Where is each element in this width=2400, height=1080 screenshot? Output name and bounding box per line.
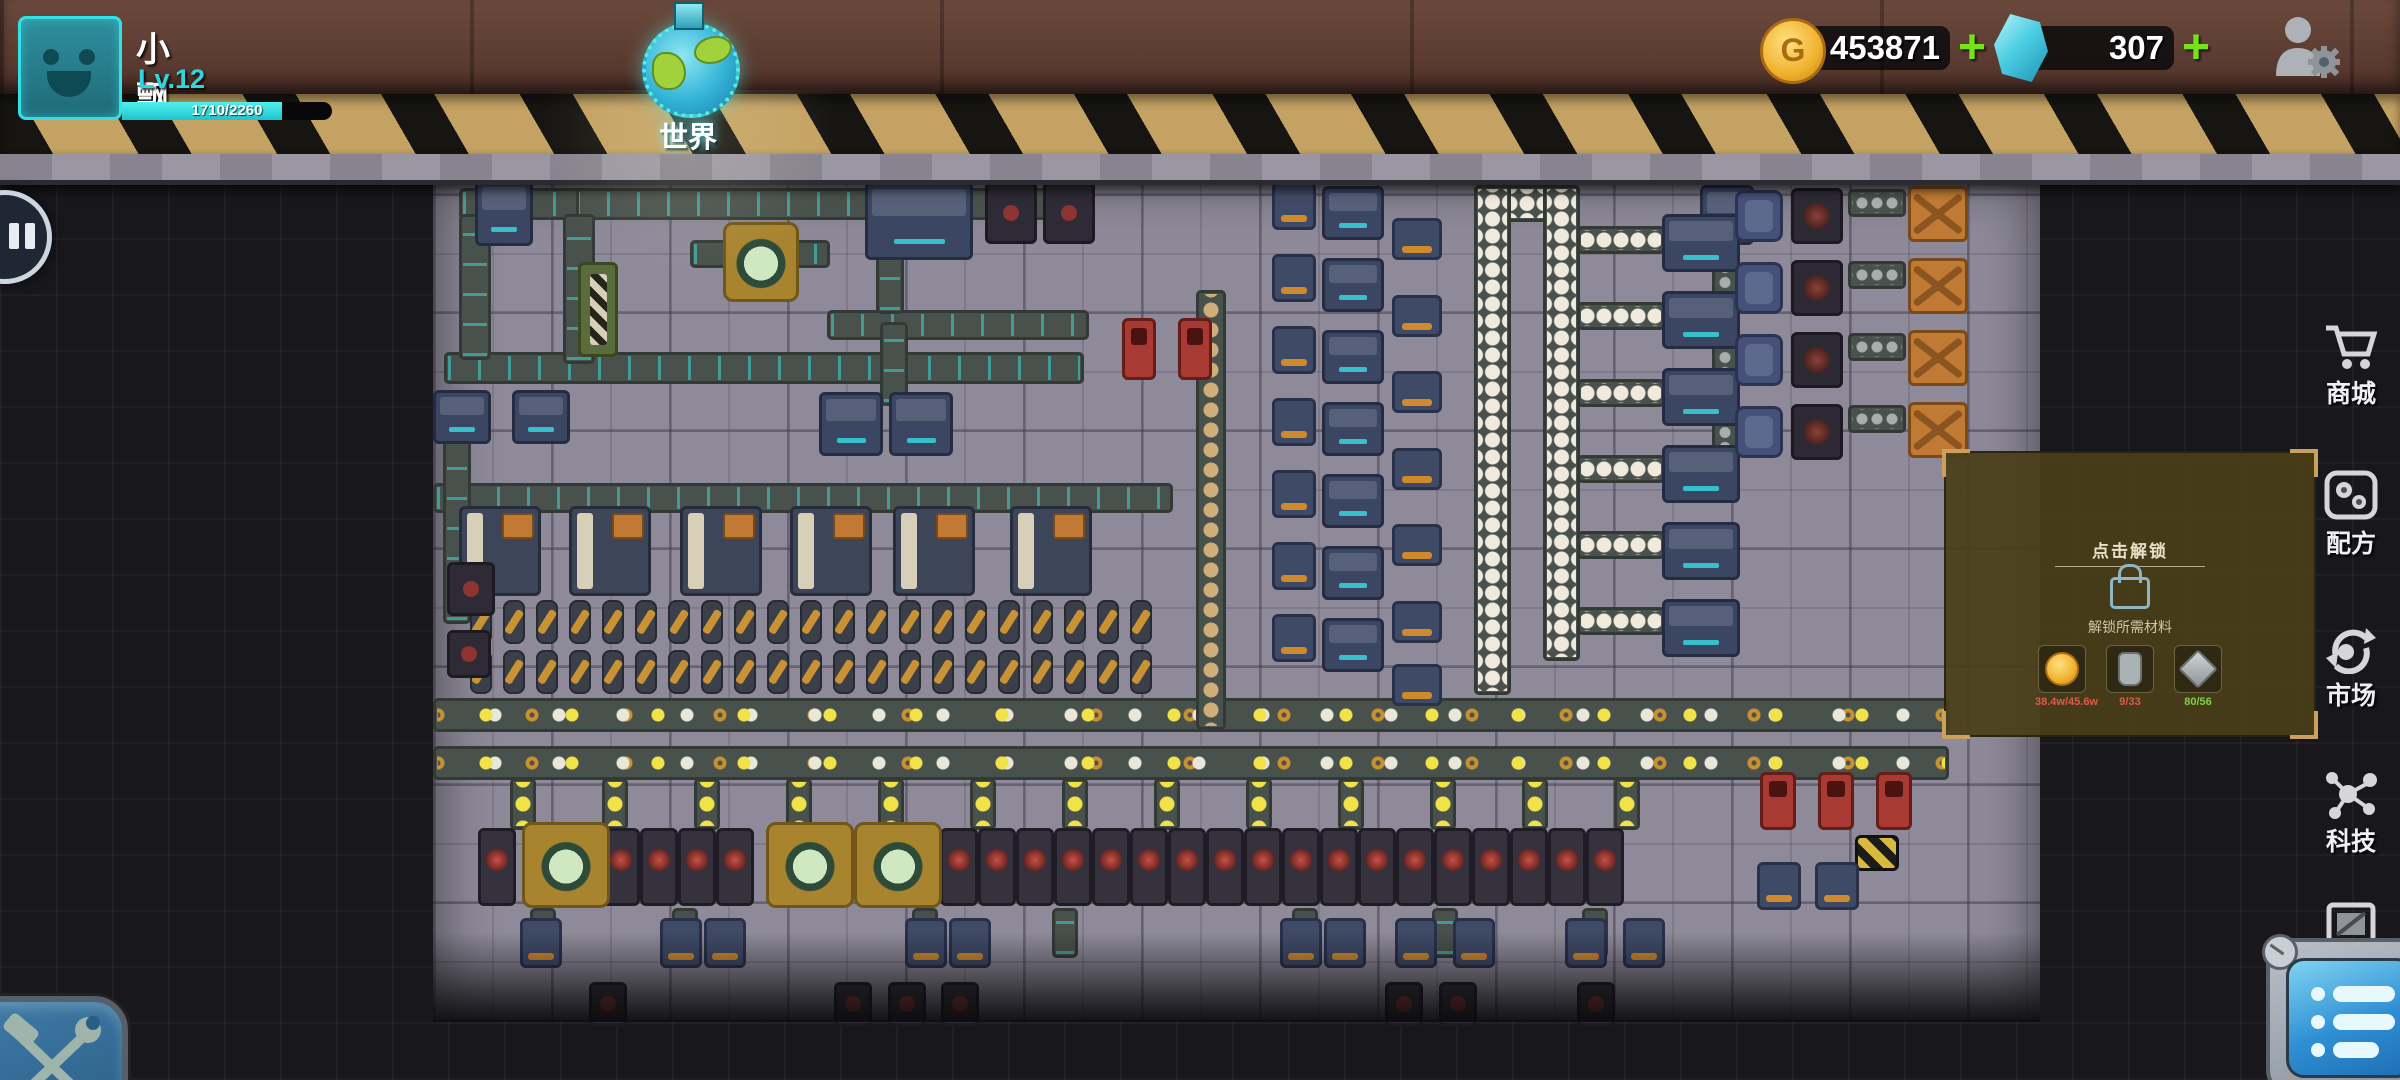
drop-belt[interactable] (1246, 778, 1272, 830)
machine-assembler[interactable] (790, 506, 872, 596)
machine-blue[interactable] (1322, 546, 1384, 600)
item-slot[interactable] (635, 650, 657, 694)
machine-gold-dome[interactable] (522, 822, 610, 908)
machine-pad[interactable] (1735, 190, 1783, 242)
pause-bar (9, 223, 19, 249)
machine-assembler[interactable] (680, 506, 762, 596)
machine-crusher[interactable] (1791, 260, 1843, 316)
machine-furnace[interactable] (1548, 828, 1586, 906)
list-bullet (2311, 1043, 2325, 1057)
machine-blue[interactable] (1662, 291, 1740, 349)
machine-smallblue[interactable] (1392, 371, 1442, 413)
pause-bar (25, 223, 35, 249)
item-slot[interactable] (1097, 650, 1119, 694)
item-slot[interactable] (899, 650, 921, 694)
machine-blue[interactable] (1662, 368, 1740, 426)
item-slot[interactable] (965, 650, 987, 694)
xp-text: 1710/2260 (122, 102, 332, 120)
machine-smallblue[interactable] (1815, 862, 1859, 910)
ore-belt[interactable] (1848, 405, 1906, 433)
item-slot[interactable] (602, 650, 624, 694)
machine-furnace[interactable] (1054, 828, 1092, 906)
machine-smallblue[interactable] (1392, 524, 1442, 566)
machine-smallblue[interactable] (1272, 614, 1316, 662)
machine-assembler[interactable] (893, 506, 975, 596)
bottle-icon (2118, 652, 2142, 686)
machine-redtower[interactable] (1122, 318, 1156, 380)
item-slot[interactable] (1064, 650, 1086, 694)
game-screen: 小飘 Lv.12 1710/2260 世界 G 453871 + 307 + (0, 0, 2400, 1080)
cost-box (2038, 645, 2086, 693)
machine-redtower[interactable] (1818, 772, 1854, 830)
globe-continent (694, 36, 732, 64)
machine-dark[interactable] (447, 562, 495, 616)
item-slot[interactable] (800, 600, 822, 644)
hazard-stripe-band (0, 94, 2400, 154)
machine-furnace[interactable] (1282, 828, 1320, 906)
machine-assembler[interactable] (1010, 506, 1092, 596)
machine-gold-dome[interactable] (854, 822, 942, 908)
drop-belt[interactable] (1430, 778, 1456, 830)
market-exchange-icon (2322, 622, 2380, 674)
machine-blue[interactable] (1662, 599, 1740, 657)
machine-crusher[interactable] (1791, 332, 1843, 388)
machine-blue[interactable] (1322, 330, 1384, 384)
gem-counter: 307 + (2028, 22, 2174, 74)
sidebar-label: 科技 (2308, 822, 2394, 858)
plot-corner (1942, 711, 1970, 739)
feeder-belt[interactable] (1577, 226, 1665, 254)
machine-assembler[interactable] (569, 506, 651, 596)
item-slot[interactable] (503, 600, 525, 644)
plot-subtitle: 解锁所需材料 (1944, 617, 2316, 637)
cost-text: 38.4w/45.6w (2035, 696, 2089, 708)
world-label: 世界 (628, 114, 748, 156)
list-line (2333, 986, 2395, 1002)
plot-corner (1942, 449, 1970, 477)
machine-redtower[interactable] (1178, 318, 1212, 380)
hairpin-belt[interactable] (1543, 185, 1580, 661)
hairpin-belt[interactable] (1474, 185, 1511, 695)
machine-furnace[interactable] (1358, 828, 1396, 906)
machine-dark[interactable] (1043, 182, 1095, 244)
item-slot[interactable] (1031, 600, 1053, 644)
machine-smallblue[interactable] (1392, 448, 1442, 490)
item-slot[interactable] (701, 600, 723, 644)
build-tools-button[interactable] (0, 996, 128, 1080)
item-slot[interactable] (569, 600, 591, 644)
feeder-belt[interactable] (1577, 607, 1665, 635)
hammer-wrench-icon (0, 1008, 112, 1080)
item-slot[interactable] (569, 650, 591, 694)
machine-crusher[interactable] (1791, 404, 1843, 460)
machine-blue[interactable] (865, 182, 973, 260)
item-slot[interactable] (734, 650, 756, 694)
machine-blue[interactable] (1322, 186, 1384, 240)
item-slot[interactable] (866, 600, 888, 644)
machine-furnace[interactable] (1206, 828, 1244, 906)
player-level: Lv.12 (138, 64, 205, 95)
machine-furnace[interactable] (478, 828, 516, 906)
lock-icon (2110, 577, 2150, 609)
sidebar-label: 配方 (2308, 524, 2394, 560)
sidebar-item-shop[interactable]: 商城 (2308, 322, 2394, 410)
drop-belt[interactable] (970, 778, 996, 830)
globe-icon (642, 22, 740, 118)
plate-icon (2178, 649, 2218, 689)
machine-dark[interactable] (447, 630, 491, 678)
feeder-belt[interactable] (1577, 455, 1665, 483)
machine-crate[interactable] (1908, 330, 1968, 386)
machine-blue[interactable] (433, 390, 491, 444)
cost-item: 38.4w/45.6w (2035, 645, 2089, 708)
gold-counter: G 453871 + (1800, 22, 1950, 74)
main-bus-belt[interactable] (433, 698, 1949, 732)
cost-text: 80/56 (2171, 696, 2225, 708)
plot-corner (2290, 711, 2318, 739)
feeder-belt[interactable] (1577, 302, 1665, 330)
coin-icon (2045, 652, 2079, 686)
drop-belt[interactable] (1062, 778, 1088, 830)
item-slot[interactable] (1130, 600, 1152, 644)
machine-blue[interactable] (1322, 474, 1384, 528)
item-slot[interactable] (965, 600, 987, 644)
plot-costs: 38.4w/45.6w 9/33 80/56 (1944, 645, 2316, 708)
item-slot[interactable] (866, 650, 888, 694)
machine-smallblue[interactable] (1392, 664, 1442, 706)
drop-belt[interactable] (602, 778, 628, 830)
ore-belt[interactable] (1848, 333, 1906, 361)
sidebar-label: 市场 (2308, 676, 2394, 712)
machine-furnace[interactable] (640, 828, 678, 906)
machine-furnace[interactable] (678, 828, 716, 906)
machine-hazcrate[interactable] (1855, 835, 1899, 871)
item-slot[interactable] (536, 600, 558, 644)
player-avatar[interactable] (18, 16, 122, 120)
task-screen (2286, 958, 2400, 1078)
sidebar-item-market[interactable]: 市场 (2308, 622, 2394, 712)
globe-factory-icon (674, 2, 704, 30)
machine-smallblue[interactable] (1757, 862, 1801, 910)
sidebar-item-recipe[interactable]: 配方 (2308, 468, 2394, 560)
list-bullet (2311, 987, 2325, 1001)
item-slot[interactable] (800, 650, 822, 694)
machine-smallblue[interactable] (1272, 470, 1316, 518)
coin-icon: G (1760, 18, 1826, 84)
cost-box (2174, 645, 2222, 693)
machine-crate[interactable] (1908, 258, 1968, 314)
machine-smallblue[interactable] (1392, 295, 1442, 337)
machine-blue[interactable] (475, 180, 533, 246)
conveyor-belt[interactable] (827, 310, 1089, 340)
avatar-eye (79, 49, 95, 65)
gem-value: 307 (2109, 26, 2164, 70)
main-bus-belt[interactable] (433, 746, 1949, 780)
cost-text: 9/33 (2103, 696, 2157, 708)
machine-furnace[interactable] (716, 828, 754, 906)
machine-blue[interactable] (1662, 445, 1740, 503)
machine-furnace[interactable] (1434, 828, 1472, 906)
machine-redtower[interactable] (1760, 772, 1796, 830)
drop-belt[interactable] (694, 778, 720, 830)
item-slot[interactable] (503, 650, 525, 694)
avatar-smile (47, 71, 91, 97)
plot-title: 点击解锁 (1944, 537, 2316, 562)
drop-belt[interactable] (1614, 778, 1640, 830)
machine-blue[interactable] (1322, 618, 1384, 672)
drop-belt[interactable] (1338, 778, 1364, 830)
item-slot[interactable] (1097, 600, 1119, 644)
cost-item: 9/33 (2103, 645, 2157, 708)
item-slot[interactable] (668, 650, 690, 694)
item-slot[interactable] (833, 650, 855, 694)
conveyor-belt[interactable] (444, 352, 1084, 384)
item-slot[interactable] (998, 650, 1020, 694)
person-gear-icon (2268, 14, 2344, 80)
machine-crusher[interactable] (1791, 188, 1843, 244)
list-line (2333, 1014, 2395, 1030)
machine-furnace[interactable] (1244, 828, 1282, 906)
machine-smallblue[interactable] (1272, 398, 1316, 446)
machine-smallblue[interactable] (1392, 218, 1442, 260)
machine-furnace[interactable] (1396, 828, 1434, 906)
machine-pad[interactable] (1735, 262, 1783, 314)
account-settings-button[interactable] (2268, 14, 2344, 80)
item-slot[interactable] (701, 650, 723, 694)
sidebar-item-tech[interactable]: 科技 (2308, 768, 2394, 858)
xp-bar: 1710/2260 (122, 102, 332, 120)
item-slot[interactable] (668, 600, 690, 644)
floor-vignette (433, 932, 2040, 1022)
item-slot[interactable] (536, 650, 558, 694)
machine-dark[interactable] (985, 182, 1037, 244)
list-bullet (2311, 1015, 2325, 1029)
item-slot[interactable] (602, 600, 624, 644)
item-slot[interactable] (899, 600, 921, 644)
machine-furnace[interactable] (1510, 828, 1548, 906)
add-gem-button[interactable]: + (2174, 20, 2218, 75)
gold-value: 453871 (1830, 26, 1940, 70)
list-line (2333, 1042, 2379, 1058)
feeder-belt[interactable] (1577, 531, 1665, 559)
machine-smallblue[interactable] (1392, 601, 1442, 643)
machine-smallblue[interactable] (1272, 542, 1316, 590)
task-list-button[interactable] (2266, 938, 2400, 1080)
add-gold-button[interactable]: + (1950, 20, 1994, 75)
machine-smallblue[interactable] (1272, 182, 1316, 230)
machine-pad[interactable] (1735, 334, 1783, 386)
machine-blue[interactable] (512, 390, 570, 444)
avatar-eye (43, 49, 59, 65)
item-slot[interactable] (734, 600, 756, 644)
machine-redtower[interactable] (1876, 772, 1912, 830)
locked-expansion-plot[interactable]: 点击解锁 解锁所需材料 38.4w/45.6w 9/33 80/56 (1944, 451, 2316, 737)
item-slot[interactable] (833, 600, 855, 644)
machine-crate[interactable] (1908, 186, 1968, 242)
globe-continent (652, 52, 686, 90)
drop-belt[interactable] (1154, 778, 1180, 830)
machine-gold-dome[interactable] (766, 822, 854, 908)
item-slot[interactable] (932, 650, 954, 694)
machine-furnace[interactable] (1130, 828, 1168, 906)
sidebar-label: 商城 (2308, 374, 2394, 410)
cost-item: 80/56 (2171, 645, 2225, 708)
ore-belt[interactable] (1848, 189, 1906, 217)
machine-furnace[interactable] (1586, 828, 1624, 906)
machine-smallblue[interactable] (1272, 254, 1316, 302)
tech-molecule-icon (2322, 768, 2380, 820)
machine-blue[interactable] (1662, 522, 1740, 580)
machine-furnace[interactable] (940, 828, 978, 906)
machine-smallblue[interactable] (1272, 326, 1316, 374)
drop-belt[interactable] (1522, 778, 1548, 830)
machine-furnace[interactable] (1092, 828, 1130, 906)
item-slot[interactable] (932, 600, 954, 644)
plot-corner (2290, 449, 2318, 477)
item-slot[interactable] (1031, 650, 1053, 694)
item-slot[interactable] (767, 650, 789, 694)
cart-icon (2322, 322, 2380, 372)
machine-pad[interactable] (1735, 406, 1783, 458)
item-slot[interactable] (1064, 600, 1086, 644)
machine-furnace[interactable] (1320, 828, 1358, 906)
plot-content: 点击解锁 解锁所需材料 38.4w/45.6w 9/33 80/56 (1944, 537, 2316, 708)
machine-blue[interactable] (1322, 402, 1384, 456)
world-button[interactable]: 世界 (628, 10, 748, 140)
item-slot[interactable] (767, 600, 789, 644)
item-slot[interactable] (1130, 650, 1152, 694)
machine-blue[interactable] (1322, 258, 1384, 312)
item-slot[interactable] (635, 600, 657, 644)
ore-belt[interactable] (1848, 261, 1906, 289)
machine-furnace[interactable] (978, 828, 1016, 906)
recipe-gears-icon (2322, 468, 2380, 522)
machine-blue[interactable] (889, 392, 953, 456)
machine-blue[interactable] (819, 392, 883, 456)
item-slot[interactable] (998, 600, 1020, 644)
machine-furnace[interactable] (1472, 828, 1510, 906)
machine-furnace[interactable] (1168, 828, 1206, 906)
feeder-belt[interactable] (1577, 379, 1665, 407)
cost-box (2106, 645, 2154, 693)
machine-blue[interactable] (1662, 214, 1740, 272)
metal-ledge (0, 154, 2400, 185)
machine-furnace[interactable] (1016, 828, 1054, 906)
